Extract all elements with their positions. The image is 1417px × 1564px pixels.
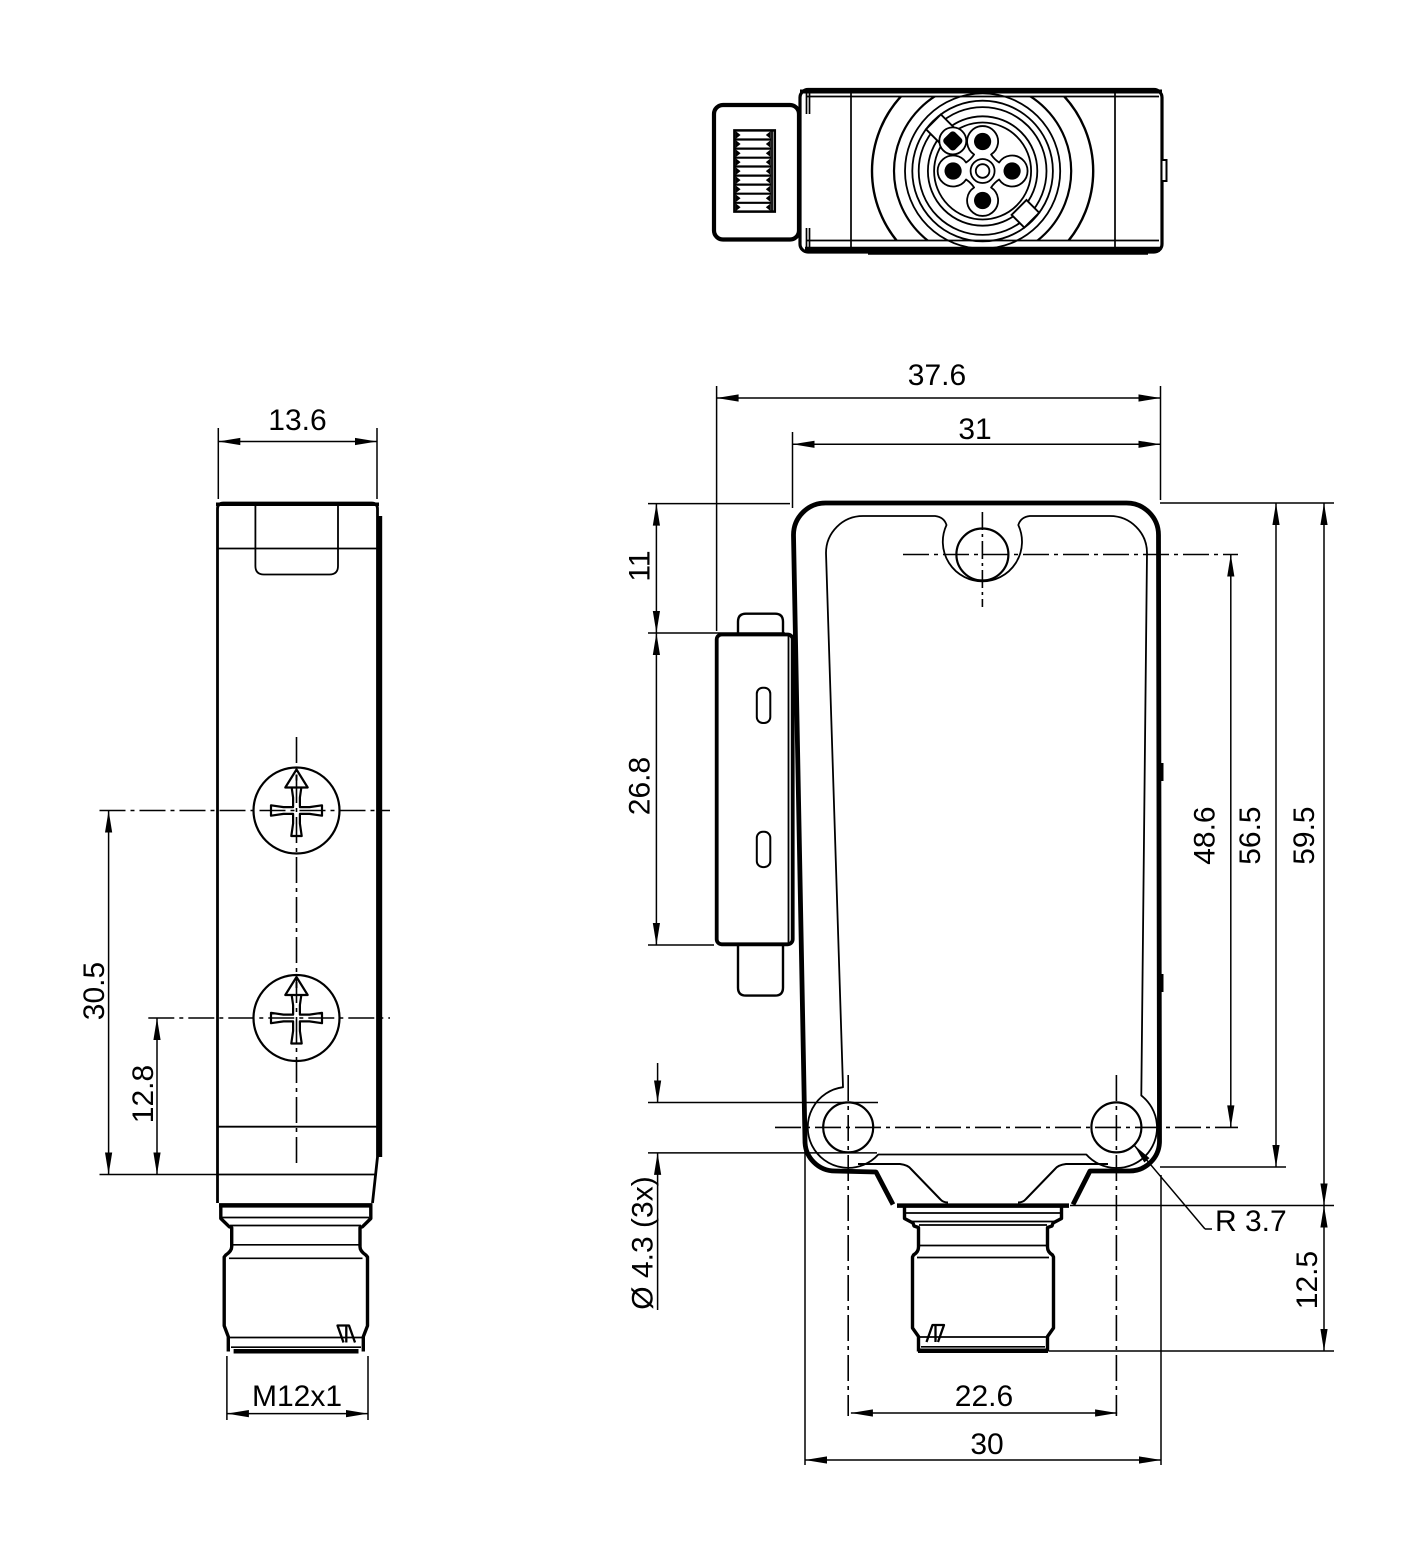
svg-text:13.6: 13.6 <box>268 404 326 437</box>
svg-text:22.6: 22.6 <box>955 1380 1013 1413</box>
svg-text:M12x1: M12x1 <box>252 1380 342 1413</box>
svg-text:11: 11 <box>624 550 657 581</box>
svg-text:12.5: 12.5 <box>1291 1251 1324 1309</box>
svg-text:48.6: 48.6 <box>1189 806 1222 864</box>
svg-text:59.5: 59.5 <box>1288 806 1321 864</box>
svg-text:R 3.7: R 3.7 <box>1215 1205 1287 1238</box>
svg-text:30.5: 30.5 <box>78 962 111 1020</box>
svg-text:26.8: 26.8 <box>624 757 657 815</box>
svg-text:37.6: 37.6 <box>908 359 966 392</box>
svg-text:56.5: 56.5 <box>1234 806 1267 864</box>
svg-text:12.8: 12.8 <box>127 1065 160 1123</box>
svg-text:Ø 4.3 (3x): Ø 4.3 (3x) <box>627 1176 660 1309</box>
svg-text:31: 31 <box>958 413 991 446</box>
svg-text:30: 30 <box>970 1428 1003 1461</box>
